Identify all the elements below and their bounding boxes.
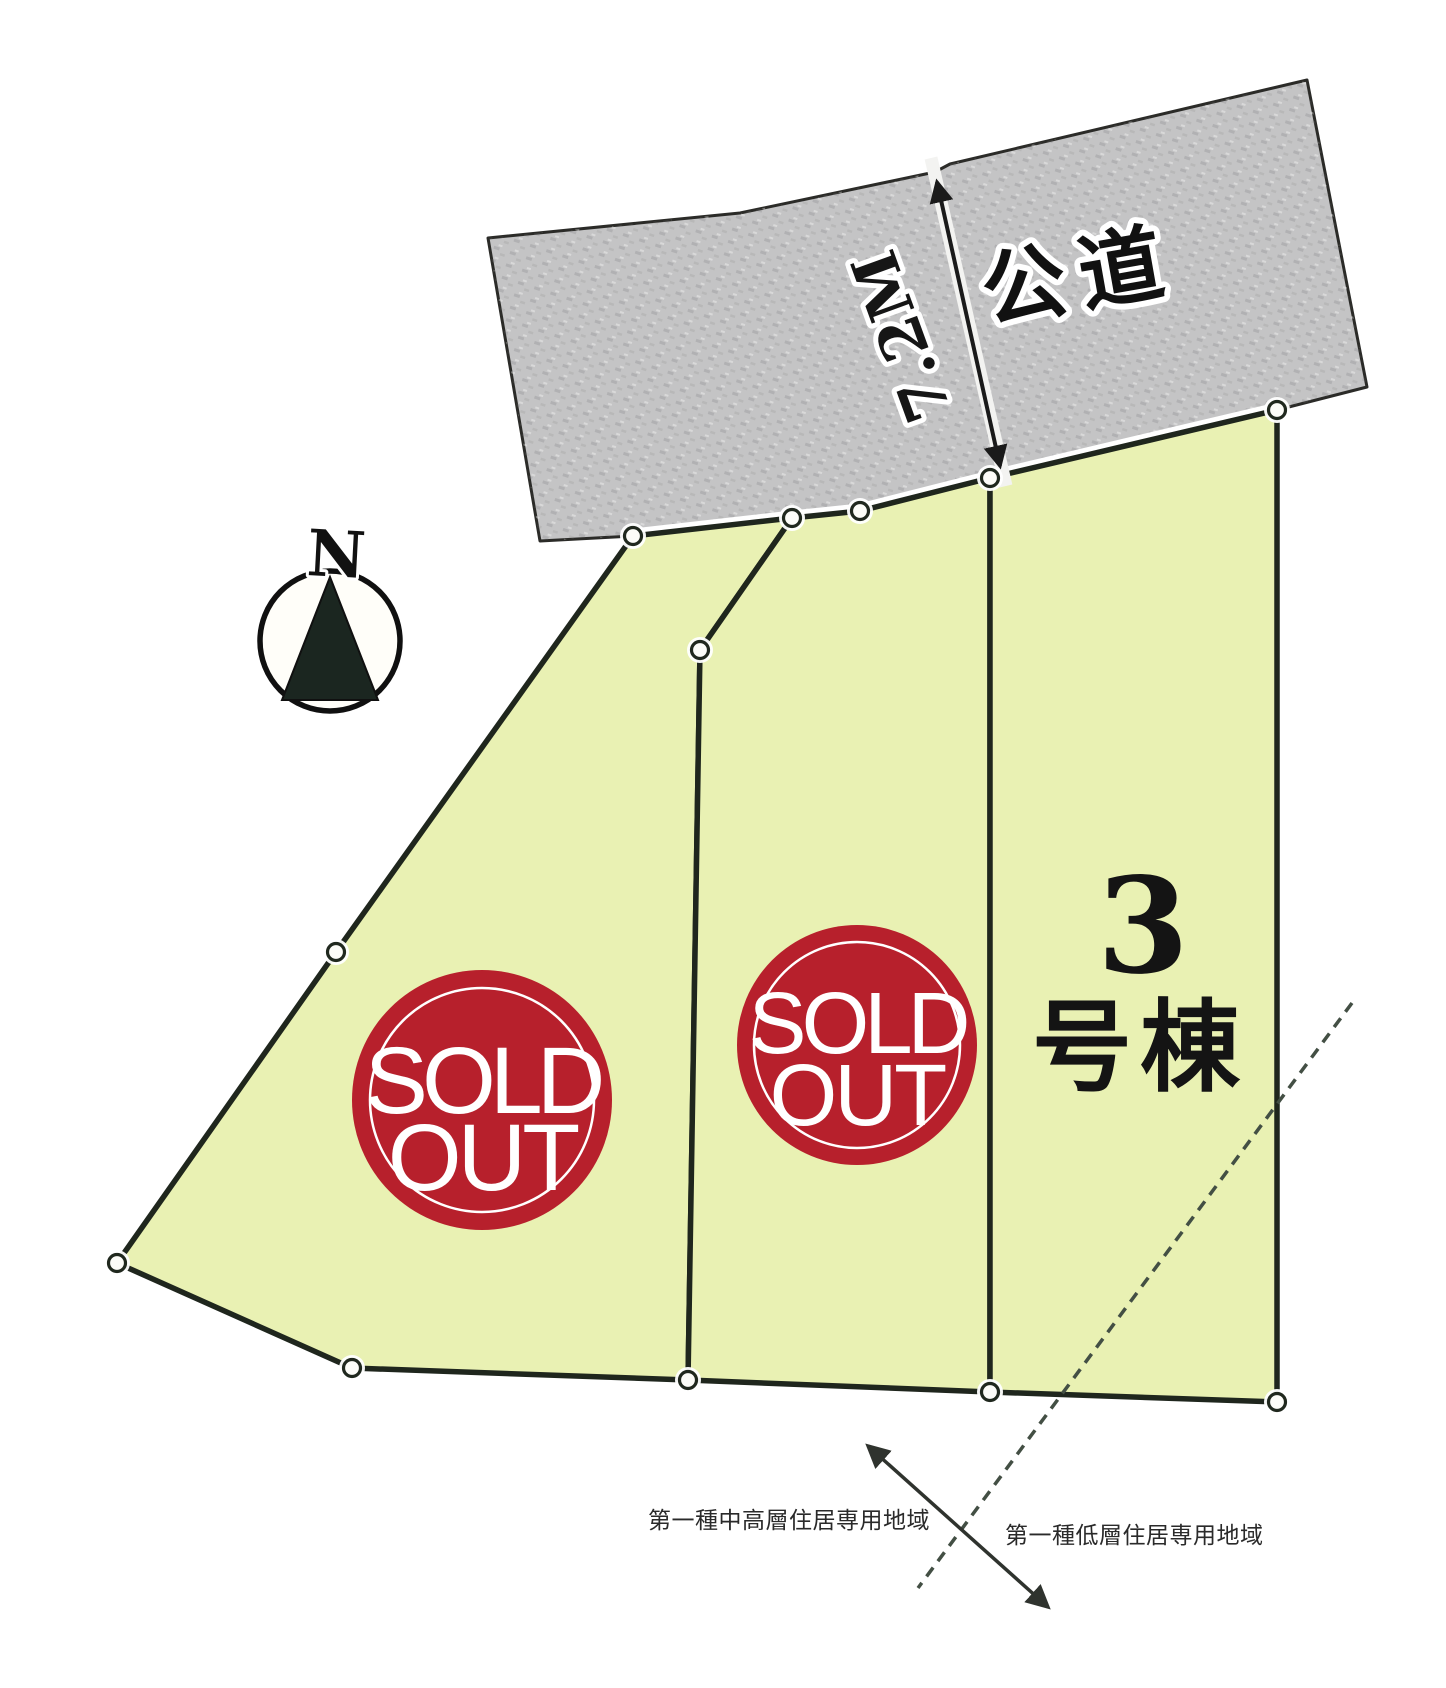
sold-out-line2: OUT [388,1105,579,1211]
sold-out-line2: OUT [770,1047,947,1144]
zoning-label-right: 第一種低層住居専用地域 [1005,1522,1264,1548]
lot-3-number: 3 [1097,849,1189,1004]
zoning-label-left: 第一種中高層住居専用地域 [648,1507,930,1533]
compass-north-label: N [305,516,367,594]
site-plan-svg: 7.2M 公道 N 3 号棟 SOLD OUT SOLD [0,0,1446,1688]
lot-layout-diagram: 7.2M 公道 N 3 号棟 SOLD OUT SOLD [0,0,1446,1688]
sold-out-stamp-lot2: SOLD OUT [737,925,977,1165]
sold-out-stamp-lot1: SOLD OUT [352,970,612,1230]
lot-3-suffix: 号棟 [1032,988,1248,1106]
